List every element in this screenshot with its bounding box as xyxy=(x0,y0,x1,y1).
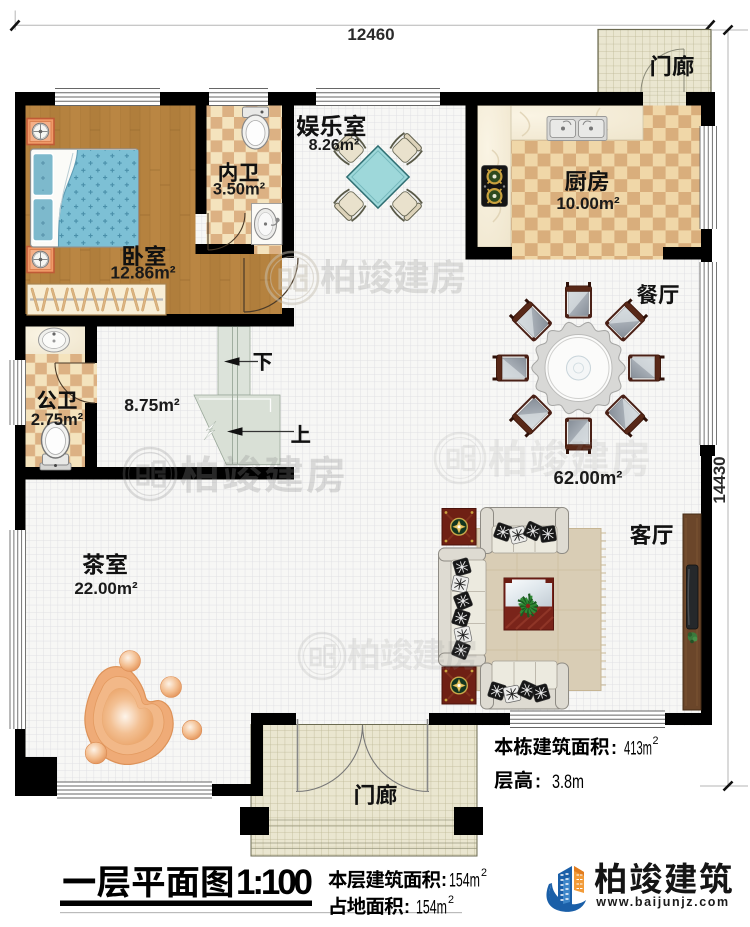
svg-text:2.75m²: 2.75m² xyxy=(31,411,84,429)
svg-text:1:100: 1:100 xyxy=(236,863,313,902)
svg-text:8.75m²: 8.75m² xyxy=(124,395,180,415)
svg-text:14430: 14430 xyxy=(710,456,729,503)
svg-text::: : xyxy=(535,772,541,793)
svg-text:2: 2 xyxy=(653,735,659,747)
svg-text:22.00m²: 22.00m² xyxy=(74,579,138,598)
svg-text::: : xyxy=(404,897,410,918)
svg-text:154m: 154m xyxy=(449,870,480,892)
svg-text:12.86m²: 12.86m² xyxy=(110,263,175,283)
svg-text:10.00m²: 10.00m² xyxy=(556,194,620,213)
svg-text::: : xyxy=(441,870,447,891)
svg-text::: : xyxy=(611,738,617,759)
svg-text:154m: 154m xyxy=(416,897,447,919)
svg-text:2: 2 xyxy=(448,894,454,906)
svg-text:12460: 12460 xyxy=(347,25,394,44)
svg-text:2: 2 xyxy=(481,867,487,879)
svg-text:413m: 413m xyxy=(624,738,652,760)
svg-text:3.8m: 3.8m xyxy=(552,771,584,793)
svg-text:www.baijunjz.com: www.baijunjz.com xyxy=(595,895,729,909)
svg-text:62.00m²: 62.00m² xyxy=(554,467,623,488)
svg-text:8.26m²: 8.26m² xyxy=(309,137,360,154)
svg-text:3.50m²: 3.50m² xyxy=(213,181,266,199)
